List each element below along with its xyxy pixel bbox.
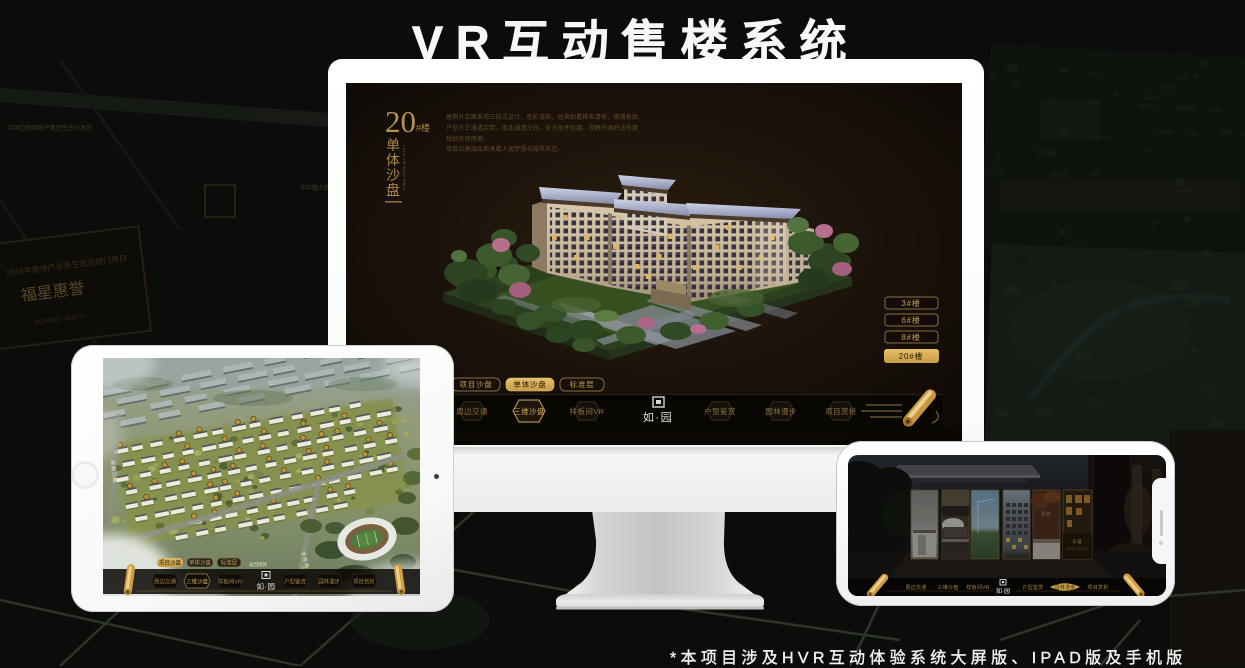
svg-text:项目以高端品质承载人居梦想与城市风范。: 项目以高端品质承载人居梦想与城市风范。 [446,145,564,153]
svg-text:VILLA THE SAND TABLE: VILLA THE SAND TABLE [402,145,407,191]
svg-text:3#楼: 3#楼 [901,298,920,308]
svg-text:规划有序而美。: 规划有序而美。 [446,135,489,143]
svg-text:标准层: 标准层 [221,559,238,567]
svg-text:样板间VR: 样板间VR [218,578,242,586]
svg-text:样板间VR: 样板间VR [570,406,605,416]
svg-text:项目沙盘: 项目沙盘 [459,379,492,389]
svg-text:体: 体 [386,153,400,169]
svg-text:周边交通: 周边交通 [456,406,488,416]
svg-text:#楼: #楼 [416,122,430,133]
svg-text:三维沙盘: 三维沙盘 [937,584,958,591]
svg-text:样板间VR: 样板间VR [966,584,990,591]
svg-text:项目赏析: 项目赏析 [353,578,376,586]
svg-text:项目赏析: 项目赏析 [825,406,857,416]
svg-text:户型方正通透实用，南北通透空间，采光条件优越，视野开阔舒适有: 户型方正通透实用，南北通透空间，采光条件优越，视野开阔舒适有度 [446,124,638,132]
svg-text:园林漫步: 园林漫步 [318,578,341,586]
svg-text:单体沙盘: 单体沙盘 [189,559,212,567]
svg-text:如·园: 如·园 [643,410,673,424]
svg-text:如·园: 如·园 [257,581,276,591]
svg-text:沙: 沙 [386,169,400,184]
svg-text:项目赏析: 项目赏析 [1087,584,1108,591]
svg-text:园林漫步: 园林漫步 [765,406,797,416]
svg-text:8#楼: 8#楼 [901,332,920,342]
svg-text:盘: 盘 [386,182,400,199]
svg-text:如·园: 如·园 [996,587,1010,595]
svg-text:单体沙盘: 单体沙盘 [513,379,546,389]
svg-text:户型鉴赏: 户型鉴赏 [284,578,307,586]
svg-text:中华路大街: 中华路大街 [300,184,330,192]
svg-text:项目沙盘: 项目沙盘 [159,559,182,567]
svg-text:中国互联网地产集团生态开发区: 中国互联网地产集团生态开发区 [8,124,92,132]
svg-text:标准层: 标准层 [570,379,595,389]
svg-text:建筑外立面采用三段式设计，色彩温和，经典耐看排布清晰，错落有: 建筑外立面采用三段式设计，色彩温和，经典耐看排布清晰，错落有致 [446,113,638,121]
svg-text:户型鉴赏: 户型鉴赏 [1022,584,1043,591]
svg-text:20#楼: 20#楼 [899,351,924,361]
svg-text:三维沙盘: 三维沙盘 [513,406,545,416]
svg-text:周边交通: 周边交通 [905,584,926,591]
svg-text:户型鉴赏: 户型鉴赏 [704,406,736,416]
svg-text:三维沙盘: 三维沙盘 [186,578,209,586]
svg-text:20: 20 [385,104,416,139]
svg-text:园林漫步: 园林漫步 [1054,584,1075,591]
svg-text:6#楼: 6#楼 [901,315,920,325]
svg-text:周边交通: 周边交通 [154,578,177,586]
svg-text:单: 单 [386,138,400,154]
svg-text:返回测试: 返回测试 [249,561,267,568]
